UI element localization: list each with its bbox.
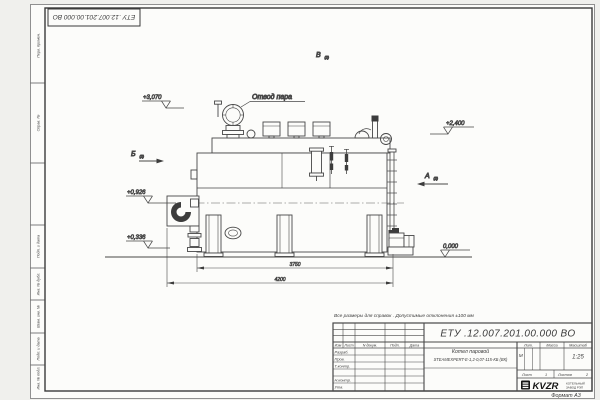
view-ref: (2): [325, 56, 329, 60]
steam-callout-label: Отвод пара: [252, 93, 292, 101]
sheets-label: Листов: [557, 373, 572, 377]
support-leg: [204, 215, 223, 257]
product-name-line2: STEAMEXPERT-Е-1,2-0,07-115-КБ (ВК): [434, 357, 508, 362]
drawing-sheet: Перв. примен. Справ. № Подп. и дата Инв.…: [0, 0, 600, 400]
product-name-line1: Котел паровой: [452, 348, 489, 355]
safety-valve: [288, 122, 305, 138]
format-label: Формат А3: [551, 393, 581, 399]
elevation-label: 0,000: [443, 244, 459, 250]
col-header: Изм: [335, 343, 342, 347]
margin-label: Инв. № подл.: [36, 367, 40, 390]
margin-label: Взам. инв. №: [36, 305, 40, 328]
elevation-label: +0,926: [127, 190, 146, 196]
role-label: Утв.: [335, 384, 344, 389]
view-ref: (2): [434, 177, 438, 181]
elevation-label: +0,336: [127, 235, 146, 241]
logo-text: KVZR: [533, 381, 559, 392]
role-label: Н.контр.: [335, 377, 351, 382]
margin-label: Подп. и дата: [36, 235, 40, 258]
margin-label: Подп. и дата: [36, 337, 40, 360]
elevation-label: +2,400: [446, 121, 465, 127]
safety-valves: [263, 122, 330, 138]
safety-valve: [313, 122, 330, 138]
lit-value: М: [519, 353, 523, 359]
dim-inner: 3750: [289, 262, 300, 268]
role-label: Т.контр.: [335, 363, 351, 368]
scale-value: 1:25: [572, 355, 584, 361]
margin-label: Инв. № дубл.: [36, 273, 40, 296]
elevation-label: +3,070: [143, 95, 162, 101]
role-label: Пров.: [335, 356, 345, 361]
col-header: Дата: [409, 343, 419, 347]
gauge-glass: [310, 148, 324, 181]
mass-header: Масса: [546, 343, 557, 347]
sheet-no: 1: [545, 373, 547, 377]
col-header: Подп.: [390, 343, 400, 347]
reference-note: Все размеры для справок . Допустимые отк…: [334, 313, 474, 319]
company-name-line2: ЗАВОД РЭП: [566, 386, 583, 390]
support-leg: [275, 215, 294, 257]
safety-valve: [263, 122, 280, 138]
margin-label: Перв. примен.: [36, 33, 40, 58]
support-leg: [365, 215, 384, 257]
view-letter: В: [316, 52, 321, 59]
view-letter: Б: [131, 151, 136, 158]
view-letter: А: [424, 173, 430, 180]
dim-overall: 4200: [274, 277, 285, 283]
view-ref: (2): [140, 155, 144, 159]
doc-number: ЕТУ .12.007.201.00.000 ВО: [440, 329, 575, 340]
scale-header: Масштаб: [569, 343, 588, 347]
top-stamp-number: ЕТУ .12.007.201.00.000 ВО: [53, 13, 136, 20]
lit-header: Лит.: [523, 343, 533, 347]
role-label: Разраб.: [335, 349, 349, 354]
col-header: Лист: [343, 343, 353, 347]
sheet-label: Лист: [521, 373, 532, 377]
margin-label: Справ. №: [36, 115, 40, 132]
col-header: N докум.: [363, 343, 378, 347]
